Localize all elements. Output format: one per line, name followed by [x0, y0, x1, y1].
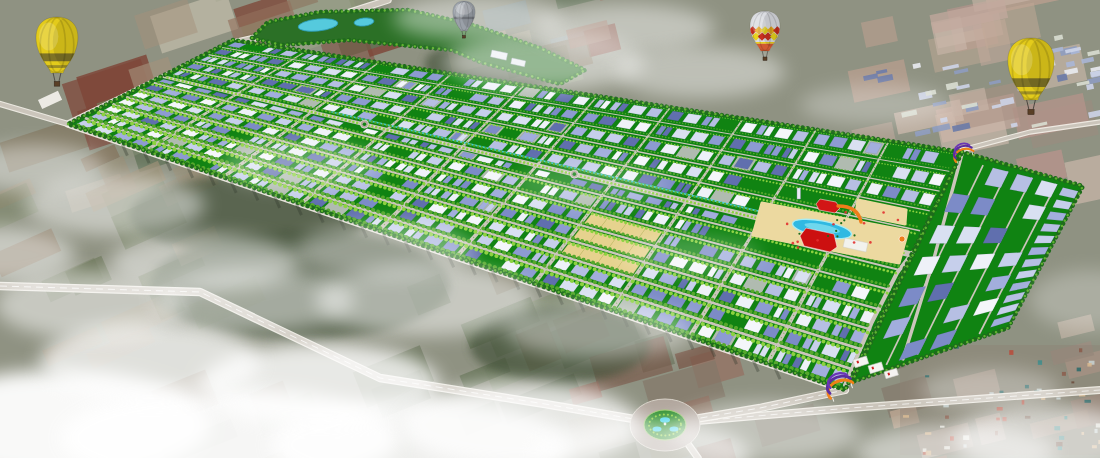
village-house [1087, 363, 1091, 367]
flowering-tree [792, 242, 795, 245]
village-house [1062, 372, 1066, 376]
cloud [505, 302, 695, 358]
flowering-tree [853, 241, 856, 244]
mini-roundabout-island [363, 122, 367, 126]
flowering-tree [816, 239, 819, 242]
scene-stage [0, 0, 1100, 458]
cloud [920, 368, 1060, 412]
village-house [1056, 397, 1060, 399]
flowering-tree [863, 222, 866, 225]
cloud [510, 163, 670, 207]
balloon-highlight [39, 23, 59, 51]
palm-tree [798, 233, 800, 235]
flowering-tree [897, 219, 900, 222]
flowering-tree [797, 246, 800, 249]
palm-tree [843, 219, 845, 221]
balloon-basket [1028, 109, 1034, 114]
cloud [620, 235, 760, 275]
aerial-render-industrial-park [0, 0, 1100, 458]
village-house [1071, 381, 1074, 383]
balloon-highlight [454, 4, 465, 19]
balloon-highlight [752, 15, 766, 35]
flowering-tree [869, 241, 872, 244]
village-house [1079, 348, 1082, 352]
balloon-highlight [1011, 44, 1033, 75]
orange-dome [899, 236, 905, 242]
palm-tree [827, 235, 829, 237]
cloud [800, 85, 950, 125]
village-house [925, 375, 929, 377]
village-house [1009, 350, 1013, 355]
balloon-basket [463, 36, 466, 39]
palm-tree [840, 222, 842, 224]
cloud [535, 4, 715, 52]
balloon-basket [54, 81, 60, 86]
village-house [1038, 360, 1042, 365]
cloud [295, 222, 475, 278]
village-house [945, 416, 949, 419]
village-house [903, 415, 909, 418]
flowering-tree [796, 241, 799, 244]
flowering-tree [882, 211, 885, 214]
cloud [110, 234, 300, 290]
village-house [1084, 400, 1090, 403]
cloud [220, 141, 380, 189]
observation-tower [797, 188, 801, 199]
village-house [1077, 368, 1081, 372]
balloon-basket [763, 57, 767, 60]
flowering-tree [844, 211, 847, 214]
flowering-tree [832, 223, 835, 226]
palm-tree [835, 230, 837, 232]
flowering-tree [786, 223, 789, 226]
palm-tree [836, 219, 838, 221]
palm-tree [836, 235, 838, 237]
palm-tree [853, 234, 855, 236]
cloud [615, 46, 785, 98]
